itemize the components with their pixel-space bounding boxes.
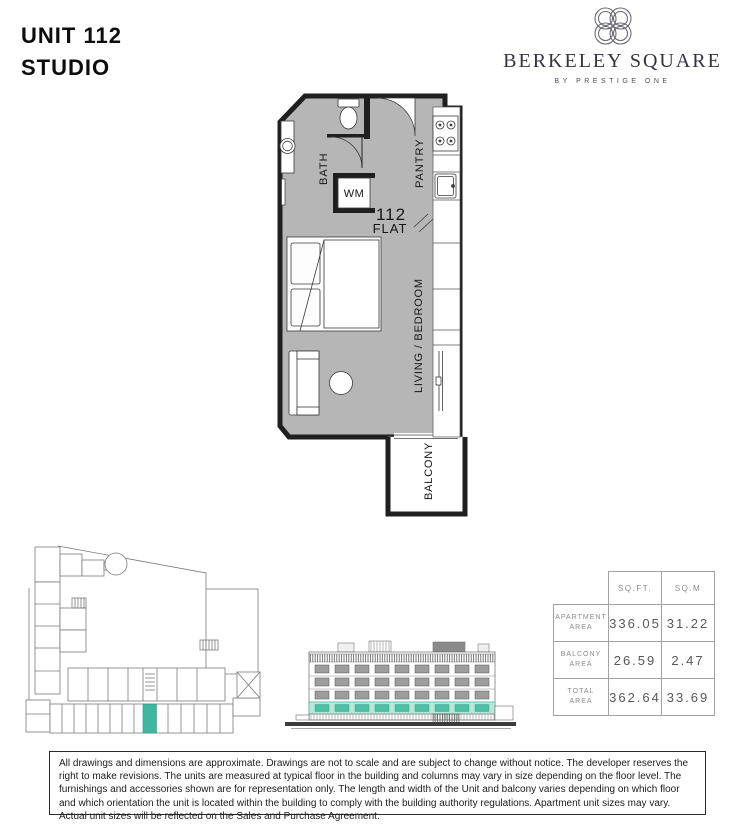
brand-logo: BERKELEY SQUARE BY PRESTIGE ONE (480, 4, 745, 85)
wm-label: WM (344, 188, 365, 200)
building-elevation (283, 630, 518, 735)
key-plan (22, 544, 266, 736)
flat-label: FLAT (373, 221, 408, 236)
ground-floor-band (309, 714, 495, 720)
ground-line (285, 722, 516, 726)
disclaimer-text: All drawings and dimensions are approxim… (59, 758, 688, 822)
sqm-header: SQ.M (662, 572, 715, 605)
floor-plan: WM (267, 93, 483, 523)
unit-type-title: STUDIO (21, 52, 122, 84)
balcony-label: BALCONY (423, 442, 435, 500)
sofa-icon (289, 351, 319, 415)
coffee-table-icon (330, 372, 353, 395)
table-header-row: SQ.FT. SQ.M (554, 572, 715, 605)
area-table: SQ.FT. SQ.M APARTMENT AREA 336.05 31.22 … (553, 571, 715, 716)
knot-icon (590, 4, 636, 48)
bath-sink-icon (280, 121, 295, 173)
table-row: BALCONY AREA 26.59 2.47 (554, 642, 715, 679)
bath-wall (364, 96, 370, 139)
stairs-icon (200, 640, 218, 650)
title-block: UNIT 112 STUDIO (21, 20, 122, 84)
kitchen-sink-icon (435, 174, 456, 198)
balcony-sqft-value: 26.59 (609, 642, 662, 679)
living-bedroom-label: LIVING / BEDROOM (413, 278, 425, 393)
row-label: APARTMENT AREA (554, 605, 609, 642)
bath-label: BATH (318, 152, 330, 185)
cornice-band (309, 654, 495, 662)
left-annex (296, 715, 309, 720)
right-annex (495, 706, 513, 720)
rooftop-structures (338, 641, 489, 652)
key-plan-highlight (143, 704, 157, 733)
bed-icon (287, 237, 381, 331)
total-sqft-value: 362.64 (609, 679, 662, 716)
table-row: TOTAL AREA 362.64 33.69 (554, 679, 715, 716)
window-rows (309, 665, 495, 702)
stairs-icon (72, 598, 86, 608)
sqft-header: SQ.FT. (609, 572, 662, 605)
row-label: TOTAL AREA (554, 679, 609, 716)
brochure-page: UNIT 112 STUDIO BERKELEY SQUARE BY PREST… (0, 0, 750, 825)
total-sqm-value: 33.69 (662, 679, 715, 716)
wm-unit: WM (333, 173, 375, 213)
disclaimer-box: All drawings and dimensions are approxim… (49, 751, 706, 815)
apartment-sqm-value: 31.22 (662, 605, 715, 642)
elevation-highlight-band (309, 702, 495, 714)
shaft-x-icon (237, 672, 260, 698)
brand-name: BERKELEY SQUARE (480, 50, 745, 73)
unit-title: UNIT 112 (21, 20, 122, 52)
apartment-sqft-value: 336.05 (609, 605, 662, 642)
table-row: APARTMENT AREA 336.05 31.22 (554, 605, 715, 642)
stove-icon (433, 116, 458, 151)
pantry-label: PANTRY (414, 138, 426, 188)
balcony-sqm-value: 2.47 (662, 642, 715, 679)
row-label: BALCONY AREA (554, 642, 609, 679)
kitchen-counter (433, 107, 460, 437)
table-corner-cell (554, 572, 609, 605)
towel-rail-icon (282, 179, 286, 205)
brand-tagline: BY PRESTIGE ONE (480, 78, 745, 85)
